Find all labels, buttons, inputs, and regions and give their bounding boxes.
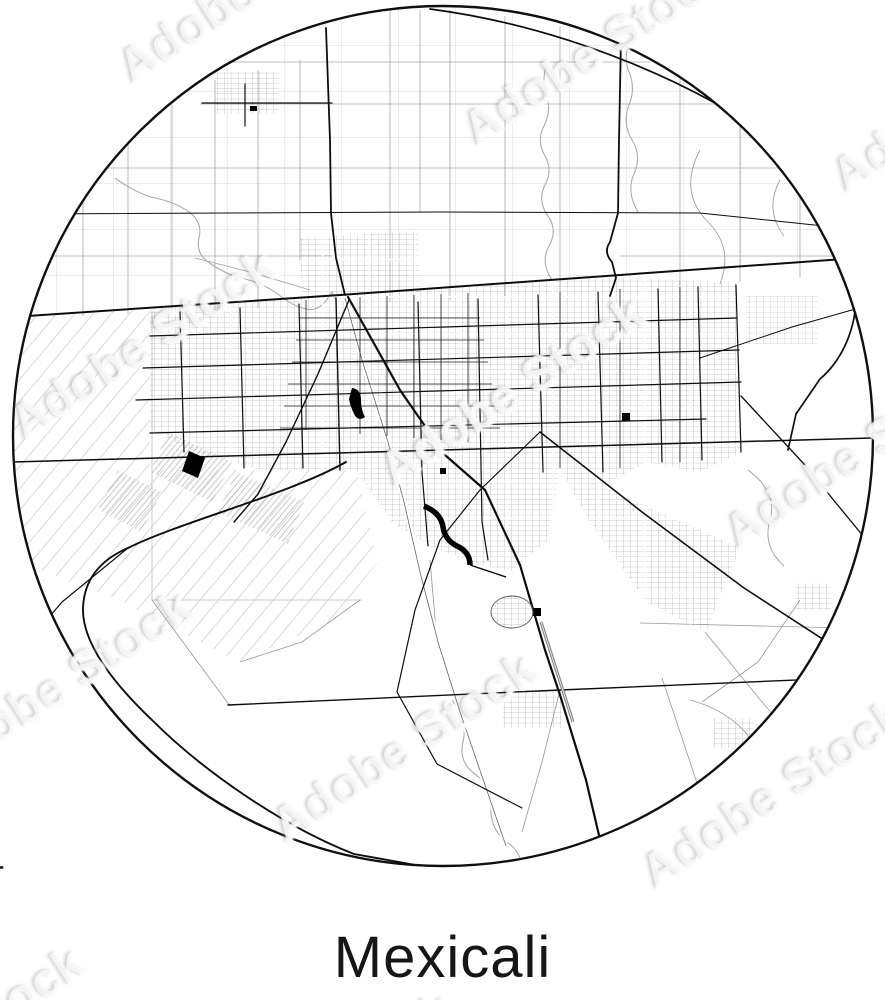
map-poster: Adobe Stock Adobe Stock Adobe Stock Adob… (0, 0, 885, 1000)
poi-square-east (622, 413, 630, 421)
city-title: Mexicali (0, 924, 885, 991)
city-map-svg (0, 0, 885, 1000)
map-content (0, 0, 885, 1000)
stadium-oval (491, 596, 533, 628)
poi-square-center (440, 468, 446, 474)
poi-square-heber (250, 106, 257, 111)
poi-square-south (533, 608, 541, 616)
